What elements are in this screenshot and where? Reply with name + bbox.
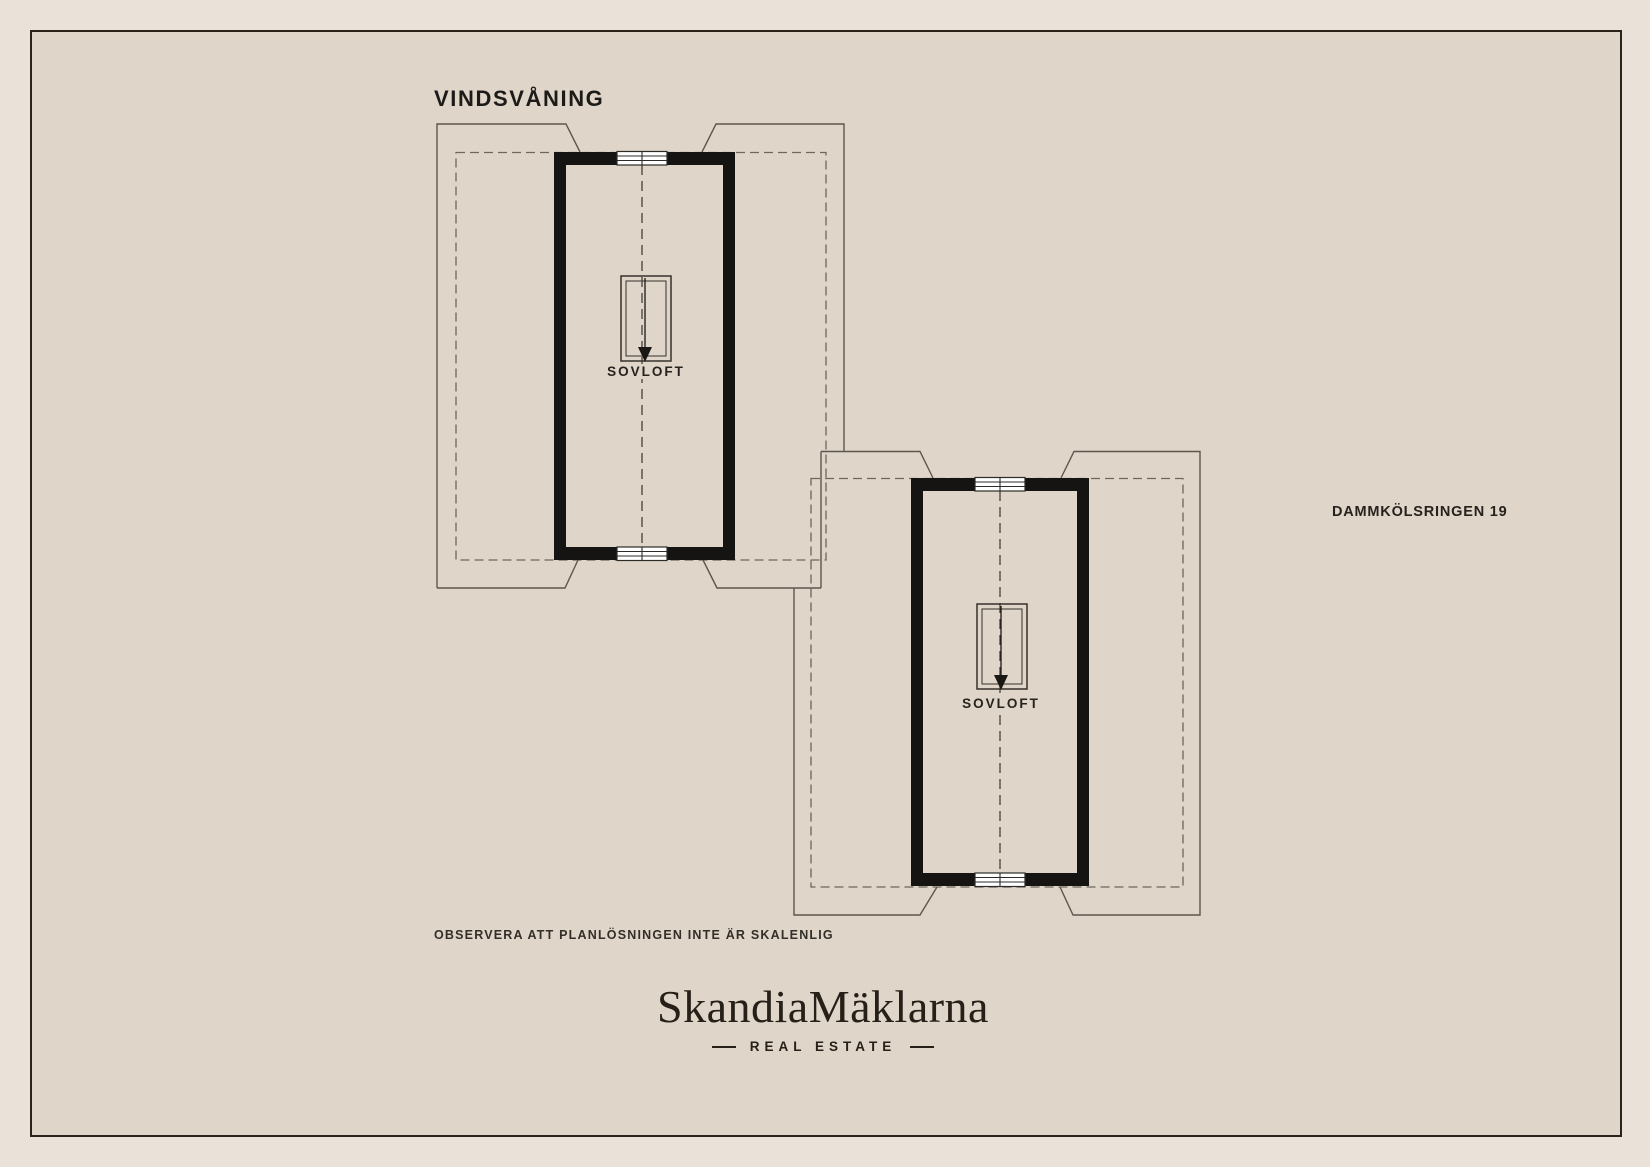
page-title: VINDSVÅNING (434, 86, 604, 112)
brand-logo: SkandiaMäklarna REAL ESTATE (657, 984, 989, 1054)
floorplan-section-2 (794, 452, 1200, 916)
arrow-down-icon (994, 606, 1008, 690)
scale-disclaimer: OBSERVERA ATT PLANLÖSNINGEN INTE ÄR SKAL… (434, 928, 834, 942)
floorplan-page: VINDSVÅNING SOVLOFT SOVLOFT DAMMKÖLSRING… (0, 0, 1650, 1167)
window-icon (617, 152, 667, 166)
address-label: DAMMKÖLSRINGEN 19 (1332, 504, 1508, 520)
tagline-left-dash (712, 1046, 736, 1048)
tagline-right-dash (910, 1046, 934, 1048)
room-label-sovloft-2: SOVLOFT (958, 696, 1044, 711)
room-label-sovloft-1: SOVLOFT (603, 364, 689, 379)
attic-boundary-dashed (811, 479, 1183, 888)
window-icon (975, 873, 1025, 887)
arrow-down-icon (638, 278, 652, 362)
window-icon (975, 478, 1025, 492)
floorplan-section-1 (437, 124, 844, 588)
brand-tagline-row: REAL ESTATE (712, 1039, 935, 1054)
brand-name: SkandiaMäklarna (657, 984, 989, 1030)
brand-tagline: REAL ESTATE (750, 1039, 897, 1054)
window-icon (617, 547, 667, 561)
roof-outline (794, 452, 1200, 916)
